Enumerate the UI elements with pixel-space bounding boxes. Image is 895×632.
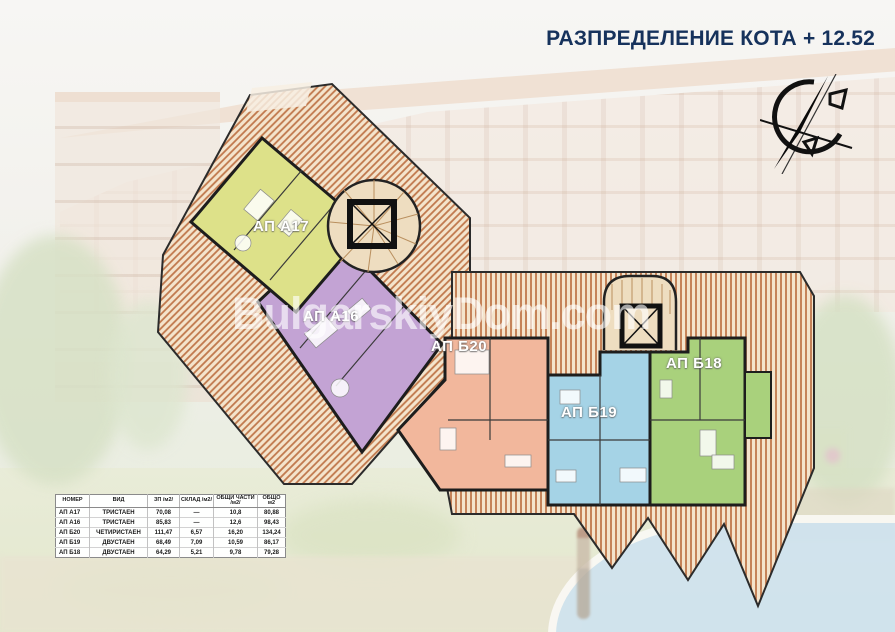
stair-core-round — [328, 180, 420, 272]
cell: 70,08 — [148, 508, 180, 518]
cell: 9,78 — [214, 548, 258, 558]
cell: АП А17 — [56, 508, 90, 518]
cell: ТРИСТАЕН — [90, 508, 148, 518]
table-row: АП Б20 ЧЕТИРИСТАЕН 111,47 6,57 16,20 134… — [56, 528, 286, 538]
cell: ДВУСТАЕН — [90, 548, 148, 558]
cell: 64,29 — [148, 548, 180, 558]
table-header-row: НОМЕР ВИД ЗП /м2/ СКЛАД /м2/ ОБЩИ ЧАСТИ … — [56, 495, 286, 508]
cell: ДВУСТАЕН — [90, 538, 148, 548]
col-header: СКЛАД /м2/ — [180, 495, 214, 508]
col-header: ЗП /м2/ — [148, 495, 180, 508]
col-header: ОБЩО м2 — [258, 495, 286, 508]
apartment-label-b20[interactable]: АП Б20 — [431, 338, 487, 355]
cell: 85,83 — [148, 518, 180, 528]
cell: 6,57 — [180, 528, 214, 538]
table-row: АП А17 ТРИСТАЕН 70,08 — 10,8 80,88 — [56, 508, 286, 518]
cell: 5,21 — [180, 548, 214, 558]
watermark: BulgarskiyDom.com — [232, 288, 650, 340]
cell: 111,47 — [148, 528, 180, 538]
apartment-b18-balcony — [745, 372, 771, 438]
cell: 10,8 — [214, 508, 258, 518]
north-arrow-icon — [760, 74, 855, 174]
cell: 16,20 — [214, 528, 258, 538]
cell: ЧЕТИРИСТАЕН — [90, 528, 148, 538]
cell: 80,88 — [258, 508, 286, 518]
cell: 79,28 — [258, 548, 286, 558]
cell: 10,59 — [214, 538, 258, 548]
cell: 98,43 — [258, 518, 286, 528]
table-row: АП А16 ТРИСТАЕН 85,83 — 12,6 98,43 — [56, 518, 286, 528]
cell: АП А16 — [56, 518, 90, 528]
table-row: АП Б18 ДВУСТАЕН 64,29 5,21 9,78 79,28 — [56, 548, 286, 558]
apartment-label-b19[interactable]: АП Б19 — [561, 404, 617, 421]
cell: ТРИСТАЕН — [90, 518, 148, 528]
page-title: РАЗПРЕДЕЛЕНИЕ КОТА + 12.52 — [546, 27, 875, 51]
cell: — — [180, 508, 214, 518]
cell: АП Б19 — [56, 538, 90, 548]
apartment-label-b18[interactable]: АП Б18 — [666, 355, 722, 372]
cell: 134,24 — [258, 528, 286, 538]
cell: 68,49 — [148, 538, 180, 548]
cell: АП Б20 — [56, 528, 90, 538]
cell: 12,6 — [214, 518, 258, 528]
page: АП А17 АП А16 АП Б20 АП Б19 АП Б18 Bulga… — [0, 0, 895, 632]
apartment-label-a17[interactable]: АП А17 — [253, 218, 309, 235]
col-header: НОМЕР — [56, 495, 90, 508]
cell: АП Б18 — [56, 548, 90, 558]
table-row: АП Б19 ДВУСТАЕН 68,49 7,09 10,59 86,17 — [56, 538, 286, 548]
col-header: ВИД — [90, 495, 148, 508]
apartments-table: НОМЕР ВИД ЗП /м2/ СКЛАД /м2/ ОБЩИ ЧАСТИ … — [55, 494, 286, 558]
cell: — — [180, 518, 214, 528]
cell: 7,09 — [180, 538, 214, 548]
cell: 86,17 — [258, 538, 286, 548]
col-header: ОБЩИ ЧАСТИ /м2/ — [214, 495, 258, 508]
